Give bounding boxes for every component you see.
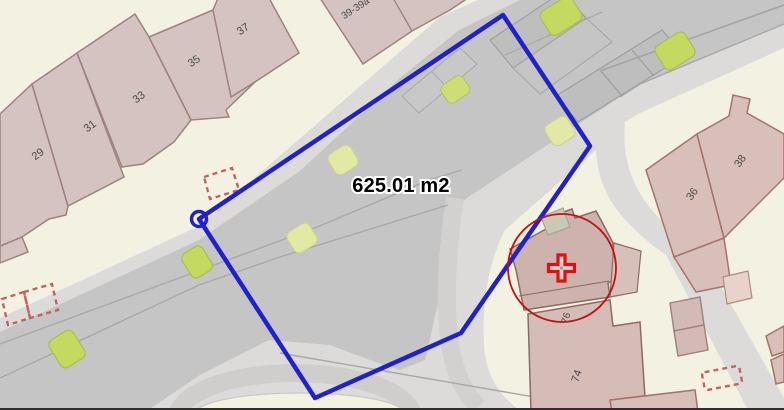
svg-text:625.01 m2: 625.01 m2 [352, 175, 449, 197]
